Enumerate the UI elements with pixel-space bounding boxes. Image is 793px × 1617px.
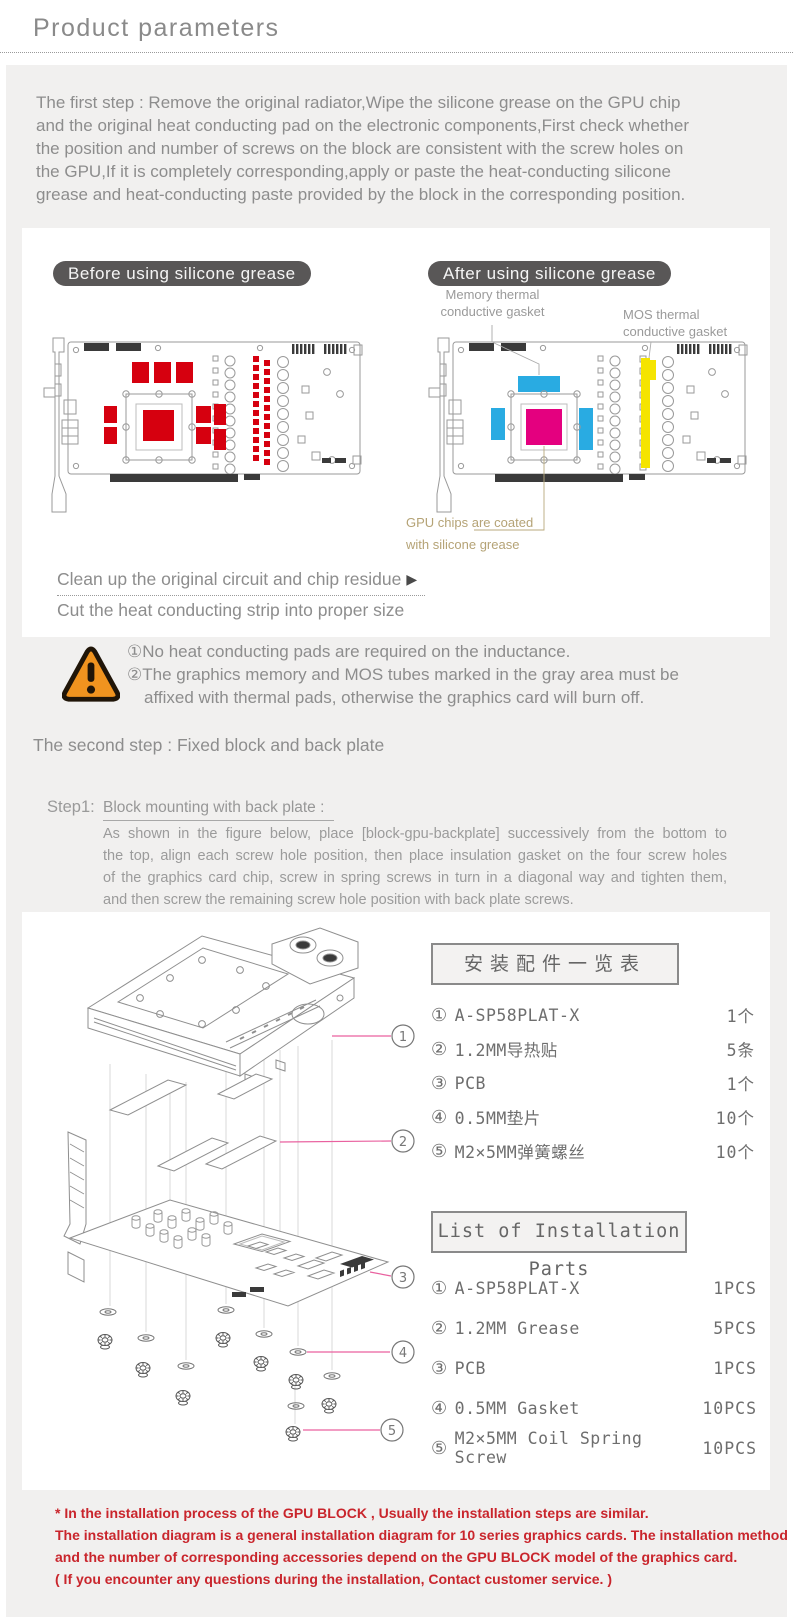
table-row: ② 1.2MM Grease 5PCS — [431, 1308, 757, 1348]
red-grease-areas — [104, 356, 270, 465]
before-grease-pill: Before using silicone grease — [53, 261, 311, 286]
gpu-silicone-area — [526, 409, 562, 445]
table-row: ① A-SP58PLAT-X 1个 — [431, 998, 755, 1032]
row-number: ④ — [431, 1398, 448, 1419]
table-row: ② 1.2MM导热贴 5条 — [431, 1032, 755, 1066]
callout-5: 5 — [388, 1424, 396, 1439]
row-number: ⑤ — [431, 1141, 448, 1162]
row-number: ③ — [431, 1358, 448, 1379]
table-row: ⑤ M2×5MM Coil Spring Screw 10PCS — [431, 1428, 757, 1468]
part-qty: 1个 — [727, 1071, 755, 1095]
part-qty: 10个 — [716, 1139, 755, 1163]
row-number: ① — [431, 1278, 448, 1299]
warning-icon — [62, 646, 120, 708]
parts-table-cn-title: 安装配件一览表 — [431, 943, 679, 985]
warning-line: ①No heat conducting pads are required on… — [127, 640, 679, 663]
clean-up-text: Clean up the original circuit and chip r… — [57, 569, 401, 589]
part-name: 1.2MM导热贴 — [455, 1037, 727, 1061]
step1-subheading: Block mounting with back plate : — [103, 799, 334, 821]
intro-line: and the original heat conducting pad on … — [36, 114, 766, 137]
product-parameters-page: { "page": { "title": "Product parameters… — [0, 0, 793, 1617]
table-row: ③ PCB 1个 — [431, 1066, 755, 1100]
row-number: ② — [431, 1039, 448, 1060]
part-qty: 10PCS — [702, 1399, 757, 1418]
part-name: 1.2MM Grease — [455, 1319, 714, 1338]
footnote-line: The installation diagram is a general in… — [55, 1524, 788, 1546]
parts-table-en-title: List of Installation Parts — [431, 1211, 687, 1253]
memory-gasket-label: Memory thermal conductive gasket — [420, 286, 565, 320]
footnote: * In the installation process of the GPU… — [55, 1502, 788, 1590]
part-qty: 1个 — [727, 1003, 755, 1027]
step1-line: of the graphics card chip, screw in spri… — [103, 867, 727, 889]
callout-numbers: 1 2 3 4 5 — [381, 1025, 414, 1441]
part-qty: 5条 — [727, 1037, 755, 1061]
part-name: 0.5MM垫片 — [455, 1105, 716, 1129]
table-row: ④ 0.5MM Gasket 10PCS — [431, 1388, 757, 1428]
gaskets-and-screws — [98, 1307, 340, 1441]
callout-1: 1 — [399, 1030, 407, 1045]
parts-table-en: ① A-SP58PLAT-X 1PCS ② 1.2MM Grease 5PCS … — [431, 1268, 757, 1468]
part-qty: 10个 — [716, 1105, 755, 1129]
part-name: A-SP58PLAT-X — [455, 1279, 714, 1298]
page-title: Product parameters — [33, 14, 280, 43]
callout-4: 4 — [399, 1346, 407, 1361]
mos-gasket-area — [641, 358, 656, 468]
callout-3: 3 — [399, 1271, 407, 1286]
table-row: ③ PCB 1PCS — [431, 1348, 757, 1388]
part-name: PCB — [455, 1074, 727, 1093]
footnote-line: ( If you encounter any questions during … — [55, 1568, 788, 1590]
row-number: ③ — [431, 1073, 448, 1094]
step1-body: As shown in the figure below, place [blo… — [103, 823, 727, 911]
table-row: ④ 0.5MM垫片 10个 — [431, 1100, 755, 1134]
intro-paragraph: The first step : Remove the original rad… — [36, 91, 766, 206]
footnote-line: * In the installation process of the GPU… — [55, 1502, 788, 1524]
step1-line: the top, align each screw hole position,… — [103, 845, 727, 867]
callout-2: 2 — [399, 1135, 407, 1150]
exploded-assembly-diagram: 1 2 3 4 5 — [40, 914, 420, 1484]
gpu-card-after-diagram — [425, 328, 760, 523]
part-qty: 5PCS — [713, 1319, 757, 1338]
callout-lines — [280, 1036, 391, 1430]
row-number: ⑤ — [431, 1438, 448, 1459]
step1-label: Step1: — [47, 798, 95, 817]
footnote-line: and the number of corresponding accessor… — [55, 1546, 788, 1568]
part-qty: 1PCS — [713, 1279, 757, 1298]
part-name: M2×5MM弹簧螺丝 — [455, 1139, 716, 1163]
thermal-pads — [110, 1074, 276, 1171]
table-row: ⑤ M2×5MM弹簧螺丝 10个 — [431, 1134, 755, 1168]
row-number: ① — [431, 1005, 448, 1026]
gpu-card-before-diagram — [40, 328, 375, 523]
title-divider — [0, 52, 793, 53]
intro-line: the position and number of screws on the… — [36, 137, 766, 160]
clean-up-line: Clean up the original circuit and chip r… — [57, 569, 417, 590]
part-qty: 1PCS — [713, 1359, 757, 1378]
row-number: ② — [431, 1318, 448, 1339]
intro-line: The first step : Remove the original rad… — [36, 91, 766, 114]
gpu-grease-label: GPU chips are coated with silicone greas… — [406, 512, 548, 556]
intro-line: grease and heat-conducting paste provide… — [36, 183, 766, 206]
part-name: A-SP58PLAT-X — [455, 1006, 727, 1025]
intro-line: the GPU,If it is completely correspondin… — [36, 160, 766, 183]
step1-line: As shown in the figure below, place [blo… — [103, 823, 727, 845]
arrow-right-icon: ▶ — [406, 571, 417, 587]
cut-strip-line: Cut the heat conducting strip into prope… — [57, 600, 404, 621]
part-name: PCB — [455, 1359, 714, 1378]
warning-text: ①No heat conducting pads are required on… — [127, 640, 679, 709]
clean-divider — [57, 595, 425, 596]
step1-line: and then screw the remaining screw hole … — [103, 889, 727, 911]
part-qty: 10PCS — [702, 1439, 757, 1458]
grease-diagram-panel: Before using silicone grease After using… — [22, 228, 770, 637]
water-block — [88, 928, 358, 1085]
warning-line: affixed with thermal pads, otherwise the… — [127, 686, 679, 709]
warning-line: ②The graphics memory and MOS tubes marke… — [127, 663, 679, 686]
parts-table-cn: ① A-SP58PLAT-X 1个 ② 1.2MM导热贴 5条 ③ PCB 1个… — [431, 998, 755, 1168]
part-name: 0.5MM Gasket — [455, 1399, 703, 1418]
second-step-heading: The second step : Fixed block and back p… — [33, 735, 384, 756]
table-row: ① A-SP58PLAT-X 1PCS — [431, 1268, 757, 1308]
after-grease-pill: After using silicone grease — [428, 261, 671, 286]
mos-gasket-label: MOS thermal conductive gasket — [623, 306, 748, 340]
row-number: ④ — [431, 1107, 448, 1128]
installation-panel: 1 2 3 4 5 安装配件一览表 ① A-SP58PLAT-X 1个 ② 1.… — [22, 912, 770, 1490]
part-name: M2×5MM Coil Spring Screw — [455, 1429, 703, 1467]
